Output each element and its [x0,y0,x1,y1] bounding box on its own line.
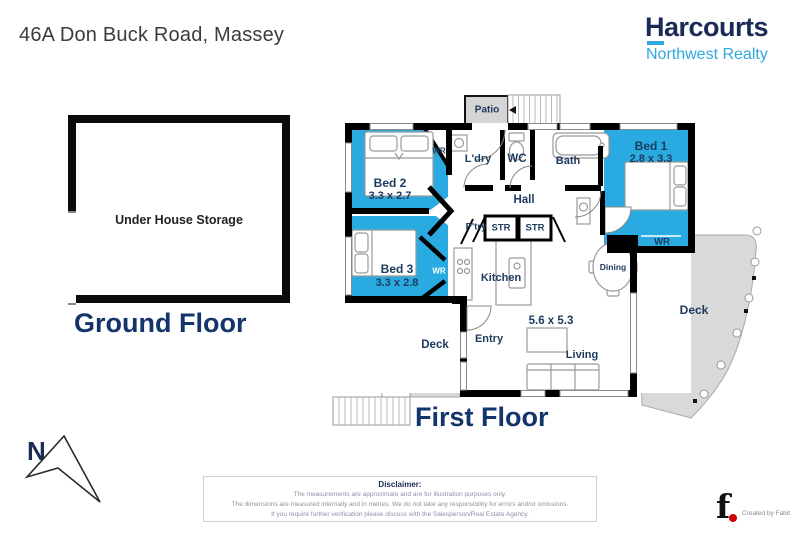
disclaimer-title: Disclaimer: [204,480,596,489]
bed1-dims: 2.8 x 3.3 [630,153,673,165]
compass-arrow-icon [10,430,110,510]
hall-label: Hall [513,194,534,206]
dining-label: Dining [600,262,626,272]
living-dims: 5.6 x 5.3 [529,315,574,327]
storage2-label: STR [526,223,545,234]
bed3-label: Bed 3 [381,262,414,276]
bed2-dims: 3.3 x 2.7 [369,190,412,202]
ground-floor-outline: Under House Storage [68,115,290,303]
patio-label: Patio [475,105,499,116]
deck-right-label: Deck [680,303,709,317]
property-address: 46A Don Buck Road, Massey [19,24,284,47]
disclaimer-line1: The measurements are approximate and are… [204,490,596,500]
fabit-logo: f [716,487,730,526]
fabit-logo-dot [729,514,737,522]
bath-label: Bath [556,155,580,167]
logo-underline [647,41,664,45]
bed2-label: Bed 2 [374,176,407,190]
fabit-credit-text: Created by Fabit [742,510,790,517]
ground-floor-window [68,211,76,305]
disclaimer-box: Disclaimer: The measurements are approxi… [203,476,597,522]
living-label: Living [566,349,598,361]
laundry-label: L'dry [465,153,491,165]
first-floor-plan-graphic [325,90,770,430]
harcourts-sub-brand: Northwest Realty [646,46,768,64]
wardrobe-bed3-label: WR [432,267,445,276]
disclaimer-line3: If you require further verification plea… [204,510,596,520]
deck-left-label: Deck [421,339,449,351]
bed3-dims: 3.3 x 2.8 [376,277,419,289]
floorplan-page: 46A Don Buck Road, Massey Harcourts Nort… [0,0,800,534]
under-house-storage-label: Under House Storage [76,213,282,227]
disclaimer-line2: The dimensions are measured internally a… [204,500,596,510]
wardrobe-bed2-label: WR [432,147,445,156]
harcourts-logo: Harcourts [645,12,768,43]
entry-label: Entry [475,333,503,345]
first-floor-title: First Floor [415,402,549,433]
wc-label: WC [507,153,526,165]
pantry-label: P'try [466,222,487,233]
bed1-label: Bed 1 [635,139,668,153]
wardrobe-bed1-label: WR [654,237,670,248]
kitchen-label: Kitchen [481,272,521,284]
ground-floor-title: Ground Floor [74,308,246,339]
first-floor-plan: Patio WR L'dry WC Bath Bed 1 2.8 x 3.3 B… [325,90,770,430]
storage1-label: STR [492,223,511,234]
